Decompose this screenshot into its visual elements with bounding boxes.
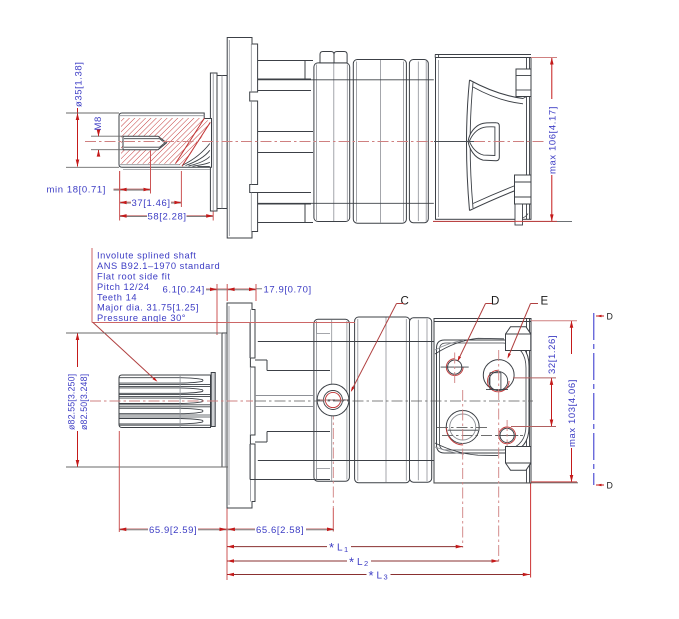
- svg-text:Pressure angle 30°: Pressure angle 30°: [97, 313, 186, 323]
- svg-text:D: D: [491, 296, 499, 308]
- svg-text:L: L: [357, 557, 363, 568]
- svg-text:E: E: [541, 296, 549, 308]
- svg-text:1: 1: [344, 545, 348, 554]
- svg-text:65.6[2.58]: 65.6[2.58]: [256, 525, 304, 536]
- svg-text:58[2.28]: 58[2.28]: [148, 211, 187, 222]
- svg-text:32[1.26]: 32[1.26]: [547, 335, 558, 374]
- svg-text:*: *: [369, 568, 374, 583]
- svg-text:*: *: [329, 540, 334, 555]
- svg-text:17.9[0.70]: 17.9[0.70]: [264, 284, 312, 295]
- svg-text:Teeth 14: Teeth 14: [97, 292, 137, 302]
- svg-text:C: C: [401, 296, 409, 308]
- svg-text:D: D: [607, 312, 613, 322]
- svg-text:D: D: [607, 481, 613, 491]
- svg-text:Major dia. 31.75[1.25]: Major dia. 31.75[1.25]: [97, 303, 199, 313]
- svg-text:3: 3: [384, 573, 388, 582]
- svg-text:min 18[0.71]: min 18[0.71]: [47, 185, 106, 196]
- svg-text:2: 2: [364, 559, 368, 568]
- svg-text:M8: M8: [93, 116, 104, 130]
- svg-text:*: *: [349, 555, 354, 570]
- svg-text:max 103[4.06]: max 103[4.06]: [567, 379, 578, 447]
- svg-text:Flat root side fit: Flat root side fit: [97, 272, 170, 282]
- svg-text:ANS B92.1–1970 standard: ANS B92.1–1970 standard: [97, 261, 220, 271]
- svg-text:ø35[1.38]: ø35[1.38]: [74, 61, 85, 107]
- svg-text:ø82.55[3.250]: ø82.55[3.250]: [67, 374, 77, 430]
- svg-text:Involute splined shaft: Involute splined shaft: [97, 251, 196, 261]
- svg-text:6.1[0.24]: 6.1[0.24]: [163, 284, 205, 295]
- svg-text:65.9[2.59]: 65.9[2.59]: [149, 525, 197, 536]
- svg-text:L: L: [377, 570, 383, 581]
- svg-text:Pitch 12/24: Pitch 12/24: [97, 282, 150, 292]
- svg-text:max 106[4.17]: max 106[4.17]: [548, 106, 559, 174]
- svg-text:L: L: [337, 542, 343, 553]
- svg-text:ø82.50[3.248]: ø82.50[3.248]: [79, 374, 89, 430]
- svg-text:37[1.46]: 37[1.46]: [132, 198, 171, 209]
